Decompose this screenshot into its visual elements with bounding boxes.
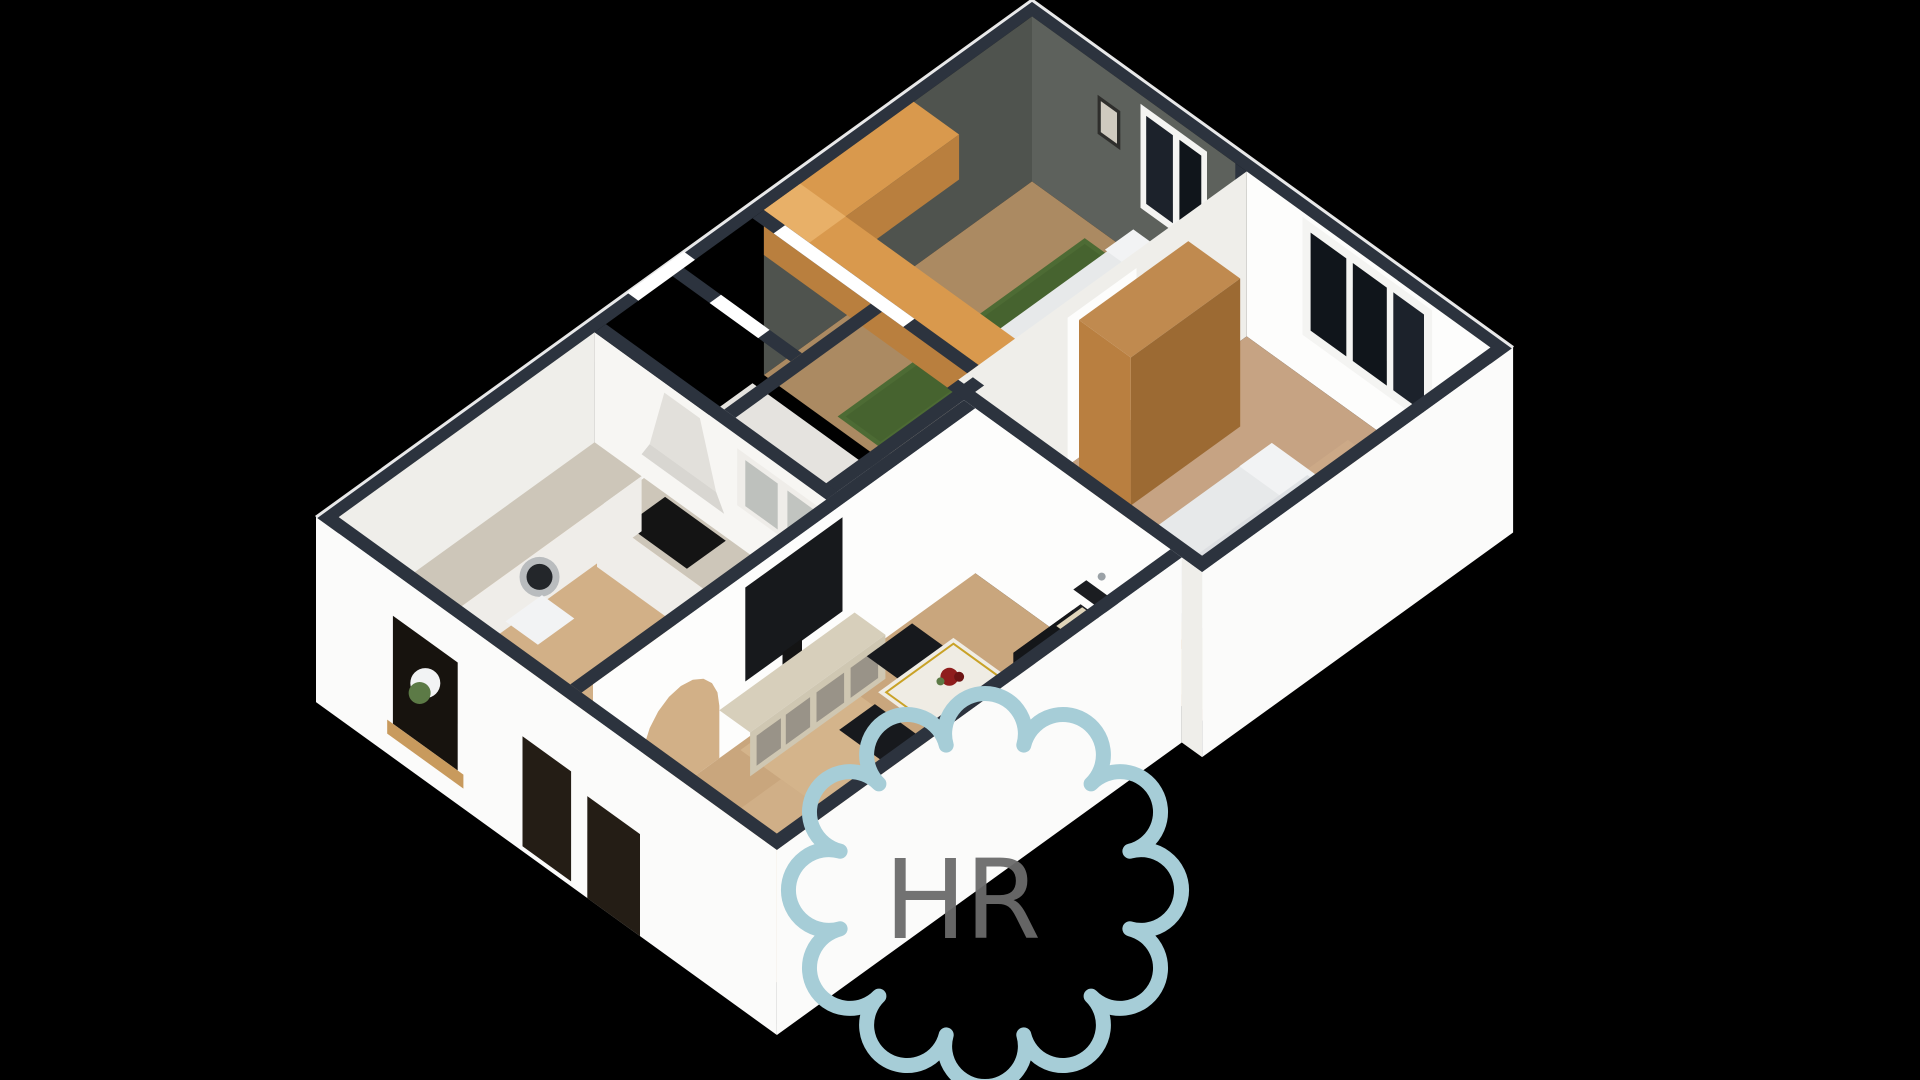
floorplan-scene: HR xyxy=(0,0,1920,1080)
washing-machine-glass xyxy=(527,564,553,590)
flower-vase-leaves xyxy=(409,682,431,704)
table-flowers-dark xyxy=(954,672,964,682)
watermark-letters: HR xyxy=(884,836,1039,964)
skirt-step xyxy=(1182,558,1202,758)
floorplan-render: HR xyxy=(0,0,1920,1080)
table-flowers-green xyxy=(936,677,944,685)
living-north-door-handle xyxy=(1098,573,1106,581)
